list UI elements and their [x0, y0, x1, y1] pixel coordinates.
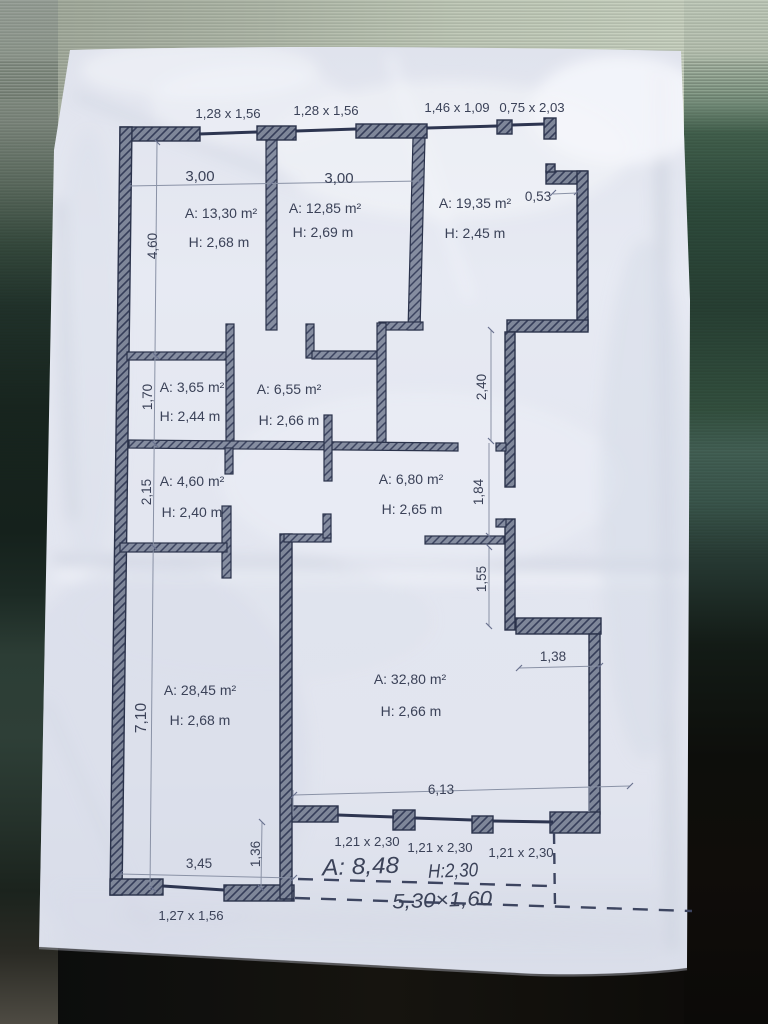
svg-text:H: 2,65 m: H: 2,65 m: [382, 501, 443, 517]
svg-text:H: 2,66 m: H: 2,66 m: [381, 703, 442, 719]
svg-text:5,30×1,60: 5,30×1,60: [392, 887, 493, 913]
svg-text:2,40: 2,40: [474, 374, 489, 400]
svg-text:A: 8,48: A: 8,48: [319, 852, 399, 881]
svg-text:1,27 x 1,56: 1,27 x 1,56: [158, 908, 223, 923]
svg-text:0,75 x 2,03: 0,75 x 2,03: [499, 100, 564, 115]
svg-text:A: 13,30 m²: A: 13,30 m²: [185, 205, 258, 221]
svg-text:6,13: 6,13: [428, 782, 454, 797]
svg-text:A: 12,85 m²: A: 12,85 m²: [289, 200, 362, 216]
svg-text:H: 2,45 m: H: 2,45 m: [445, 225, 506, 241]
svg-text:H: 2,68 m: H: 2,68 m: [189, 234, 250, 250]
svg-text:1,36: 1,36: [248, 841, 263, 867]
svg-text:A: 6,55 m²: A: 6,55 m²: [257, 381, 322, 397]
svg-text:A: 4,60 m²: A: 4,60 m²: [160, 473, 225, 489]
svg-text:A: 32,80 m²: A: 32,80 m²: [374, 671, 447, 687]
svg-text:7,10: 7,10: [133, 703, 150, 734]
svg-text:A: 6,80 m²: A: 6,80 m²: [379, 471, 444, 487]
svg-text:H: 2,69 m: H: 2,69 m: [293, 224, 354, 240]
svg-text:1,21 x 2,30: 1,21 x 2,30: [488, 845, 553, 860]
svg-text:A: 28,45 m²: A: 28,45 m²: [164, 682, 237, 698]
svg-text:1,55: 1,55: [474, 566, 489, 592]
svg-text:1,70: 1,70: [140, 384, 155, 410]
svg-text:H: 2,68 m: H: 2,68 m: [170, 712, 231, 728]
svg-text:1,28 x 1,56: 1,28 x 1,56: [293, 103, 358, 118]
svg-text:1,21 x 2,30: 1,21 x 2,30: [407, 840, 472, 855]
svg-text:3,00: 3,00: [324, 170, 353, 187]
svg-text:0,53: 0,53: [525, 189, 551, 204]
svg-text:H: 2,40 m: H: 2,40 m: [162, 504, 223, 520]
svg-text:A: 19,35 m²: A: 19,35 m²: [439, 195, 512, 211]
svg-text:4,60: 4,60: [145, 233, 160, 259]
svg-text:1,21 x 2,30: 1,21 x 2,30: [334, 834, 399, 849]
svg-text:H: 2,66 m: H: 2,66 m: [259, 412, 320, 428]
svg-text:1,38: 1,38: [540, 649, 566, 664]
svg-text:H: 2,44 m: H: 2,44 m: [160, 408, 221, 424]
svg-text:2,15: 2,15: [139, 479, 154, 505]
svg-text:1,46 x 1,09: 1,46 x 1,09: [424, 100, 489, 115]
svg-text:1,28 x 1,56: 1,28 x 1,56: [195, 106, 260, 121]
svg-text:H:2,30: H:2,30: [428, 859, 479, 883]
svg-text:3,45: 3,45: [186, 856, 212, 871]
svg-text:3,00: 3,00: [185, 168, 214, 185]
svg-text:A: 3,65 m²: A: 3,65 m²: [160, 379, 225, 395]
svg-text:1,84: 1,84: [471, 478, 486, 505]
